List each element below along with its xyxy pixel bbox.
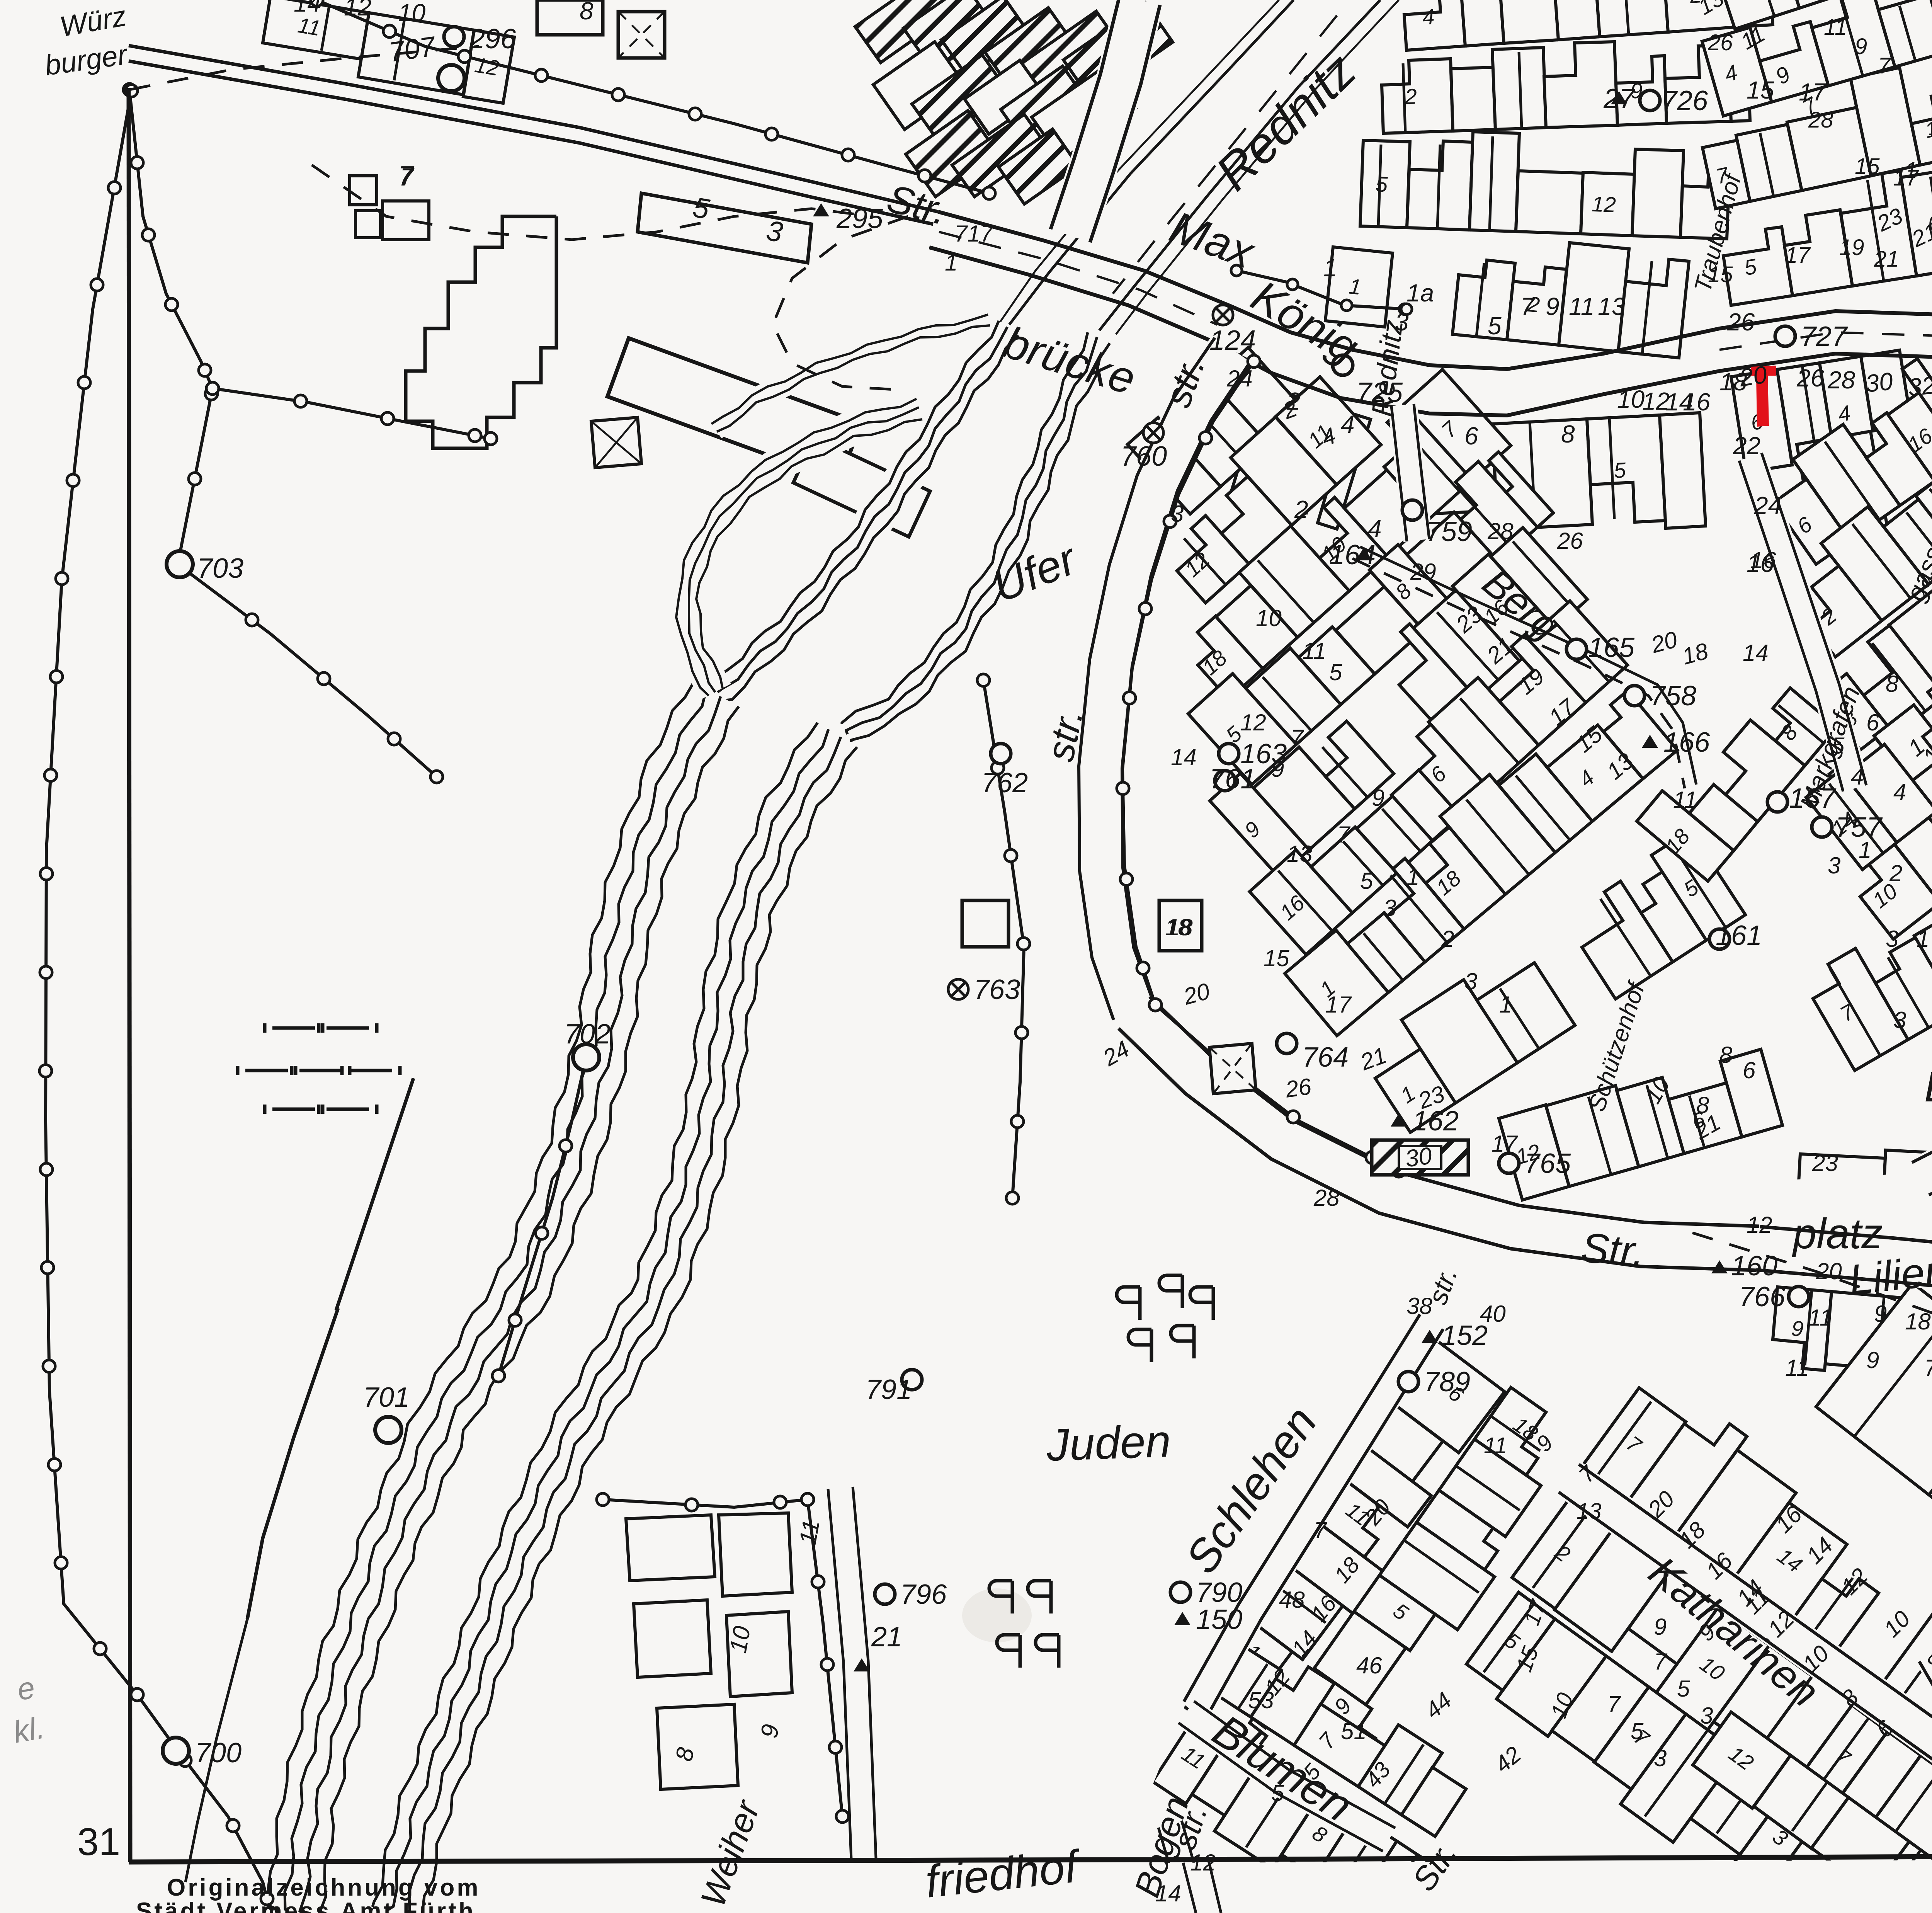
- svg-text:28: 28: [1487, 518, 1514, 544]
- svg-text:platz: platz: [1792, 1210, 1883, 1258]
- svg-text:124: 124: [1209, 325, 1256, 356]
- svg-text:29: 29: [1410, 559, 1436, 585]
- svg-text:5: 5: [1488, 312, 1502, 340]
- svg-text:27: 27: [1603, 83, 1636, 114]
- svg-text:14: 14: [294, 0, 321, 17]
- svg-text:23: 23: [1812, 1150, 1838, 1176]
- svg-text:296: 296: [469, 24, 516, 54]
- svg-text:1a: 1a: [1406, 279, 1434, 307]
- svg-text:15: 15: [1264, 945, 1289, 971]
- svg-text:19: 19: [1839, 235, 1864, 260]
- svg-text:2: 2: [1441, 926, 1454, 952]
- svg-text:6: 6: [1743, 1057, 1756, 1083]
- svg-text:9: 9: [1855, 34, 1867, 59]
- svg-text:15: 15: [1855, 154, 1880, 179]
- svg-text:165: 165: [1588, 632, 1635, 663]
- svg-text:3: 3: [1464, 968, 1477, 994]
- svg-text:3: 3: [1886, 926, 1898, 952]
- svg-text:5: 5: [1613, 458, 1627, 483]
- svg-text:kl.: kl.: [10, 1710, 47, 1750]
- svg-text:766: 766: [1739, 1282, 1786, 1312]
- svg-text:761: 761: [1209, 764, 1256, 795]
- svg-text:2: 2: [1294, 495, 1308, 523]
- svg-text:150: 150: [1196, 1604, 1242, 1635]
- svg-text:4: 4: [1893, 779, 1906, 805]
- svg-text:1: 1: [1323, 254, 1337, 282]
- svg-text:763: 763: [974, 974, 1020, 1005]
- svg-text:7: 7: [1878, 53, 1891, 78]
- svg-text:8: 8: [580, 0, 594, 25]
- svg-text:17: 17: [1325, 992, 1352, 1018]
- svg-text:15: 15: [1928, 115, 1932, 140]
- svg-text:9: 9: [1874, 1301, 1887, 1327]
- svg-text:46: 46: [1356, 1653, 1382, 1678]
- svg-text:3: 3: [1828, 853, 1840, 878]
- svg-text:702: 702: [564, 1019, 611, 1050]
- svg-text:11: 11: [1808, 1305, 1832, 1331]
- svg-text:Str.: Str.: [1580, 1224, 1646, 1275]
- svg-text:4: 4: [1422, 4, 1435, 29]
- svg-text:5: 5: [1329, 659, 1342, 685]
- svg-text:14: 14: [1743, 640, 1769, 666]
- svg-text:13: 13: [1598, 293, 1626, 320]
- svg-text:18: 18: [1167, 914, 1193, 940]
- svg-text:5: 5: [1271, 1780, 1284, 1806]
- svg-text:7: 7: [1607, 1691, 1621, 1717]
- svg-text:9: 9: [1372, 785, 1384, 811]
- svg-text:3: 3: [1700, 1703, 1713, 1729]
- svg-text:24: 24: [1226, 366, 1253, 391]
- svg-text:790: 790: [1196, 1577, 1242, 1608]
- svg-text:17: 17: [1492, 1131, 1518, 1157]
- svg-text:9: 9: [1546, 293, 1560, 320]
- svg-text:5: 5: [1375, 172, 1388, 196]
- svg-text:28: 28: [1808, 107, 1833, 133]
- svg-text:1: 1: [1348, 274, 1362, 300]
- svg-text:26: 26: [1796, 364, 1825, 392]
- svg-text:791: 791: [866, 1374, 912, 1405]
- svg-text:15: 15: [1708, 262, 1733, 287]
- svg-text:3: 3: [1383, 895, 1396, 921]
- svg-text:3: 3: [1171, 501, 1184, 527]
- svg-text:796: 796: [900, 1579, 947, 1610]
- svg-text:12: 12: [1747, 1212, 1772, 1238]
- svg-text:20: 20: [1737, 361, 1769, 392]
- svg-text:10: 10: [1256, 605, 1282, 631]
- svg-text:5: 5: [1832, 733, 1845, 759]
- svg-text:160: 160: [1731, 1251, 1777, 1282]
- svg-text:7: 7: [1314, 1517, 1328, 1543]
- svg-text:762: 762: [981, 768, 1028, 798]
- svg-text:10: 10: [398, 0, 426, 27]
- svg-text:765: 765: [1524, 1148, 1571, 1179]
- svg-text:48: 48: [1279, 1587, 1305, 1613]
- svg-text:4: 4: [1341, 410, 1355, 438]
- svg-text:30: 30: [1864, 367, 1895, 398]
- svg-text:2: 2: [1889, 860, 1902, 886]
- svg-text:758: 758: [1650, 681, 1696, 711]
- svg-text:26: 26: [1727, 308, 1755, 336]
- svg-text:717: 717: [954, 221, 994, 247]
- svg-text:5: 5: [1360, 868, 1373, 894]
- svg-text:10: 10: [725, 1624, 756, 1655]
- svg-text:8: 8: [1719, 1042, 1733, 1068]
- svg-text:2: 2: [1404, 84, 1417, 109]
- svg-text:26: 26: [1557, 528, 1583, 554]
- svg-text:8: 8: [1886, 671, 1899, 697]
- svg-text:701: 701: [363, 1382, 410, 1413]
- svg-text:38: 38: [1406, 1293, 1432, 1319]
- svg-text:32: 32: [1906, 371, 1932, 402]
- svg-text:726: 726: [1662, 85, 1708, 116]
- svg-text:164: 164: [1329, 540, 1376, 570]
- svg-text:1: 1: [1499, 992, 1512, 1018]
- svg-text:26: 26: [1283, 1073, 1313, 1103]
- svg-text:21: 21: [871, 1622, 902, 1653]
- svg-text:9: 9: [1790, 1316, 1804, 1341]
- svg-text:11: 11: [1569, 293, 1594, 320]
- svg-text:7: 7: [1924, 1355, 1932, 1381]
- svg-text:7: 7: [400, 163, 415, 191]
- svg-text:22: 22: [1733, 432, 1760, 460]
- svg-text:7: 7: [1291, 725, 1304, 751]
- svg-text:Juden: Juden: [1045, 1416, 1172, 1471]
- svg-text:13: 13: [1287, 841, 1313, 867]
- svg-text:6: 6: [1464, 422, 1478, 450]
- svg-text:Löwen: Löwen: [1924, 1063, 1932, 1111]
- svg-text:9: 9: [1271, 756, 1284, 782]
- svg-text:759: 759: [1426, 516, 1472, 547]
- svg-text:1: 1: [1406, 864, 1419, 890]
- svg-text:40: 40: [1480, 1301, 1506, 1327]
- svg-text:4: 4: [1851, 764, 1864, 790]
- svg-text:12: 12: [1240, 710, 1266, 735]
- svg-text:14: 14: [1171, 744, 1197, 770]
- svg-text:28: 28: [1313, 1185, 1340, 1211]
- svg-text:21: 21: [1874, 247, 1899, 272]
- svg-text:11: 11: [1673, 787, 1697, 813]
- svg-text:28: 28: [1827, 366, 1855, 394]
- svg-text:1: 1: [1917, 926, 1929, 952]
- svg-text:9: 9: [1654, 1614, 1667, 1640]
- svg-text:295: 295: [836, 203, 883, 234]
- svg-text:3: 3: [1654, 1745, 1667, 1771]
- svg-text:6: 6: [1866, 710, 1879, 735]
- svg-text:31: 31: [77, 1820, 120, 1864]
- svg-text:11: 11: [1785, 1355, 1809, 1381]
- svg-text:8: 8: [1561, 420, 1575, 448]
- svg-text:166: 166: [1663, 727, 1710, 758]
- svg-text:764: 764: [1302, 1042, 1349, 1073]
- svg-text:18: 18: [1905, 1309, 1931, 1334]
- svg-text:Städt.Vermess.Amt Fürth.: Städt.Vermess.Amt Fürth.: [136, 1898, 485, 1913]
- svg-text:24: 24: [1754, 492, 1782, 519]
- svg-text:10: 10: [1617, 385, 1645, 413]
- svg-text:13: 13: [1577, 1499, 1602, 1524]
- svg-text:7: 7: [1337, 822, 1351, 848]
- svg-text:17: 17: [1785, 243, 1811, 268]
- svg-text:9: 9: [1866, 1347, 1879, 1373]
- svg-text:16: 16: [1683, 388, 1711, 416]
- svg-text:760: 760: [1121, 441, 1167, 472]
- svg-text:162: 162: [1412, 1106, 1459, 1137]
- svg-text:7: 7: [1654, 1649, 1668, 1675]
- svg-text:727: 727: [1801, 321, 1848, 352]
- svg-text:12: 12: [1591, 192, 1616, 217]
- svg-text:14: 14: [1155, 1881, 1181, 1906]
- svg-text:161: 161: [1716, 920, 1762, 951]
- svg-text:20: 20: [1816, 1258, 1842, 1284]
- svg-text:30: 30: [1403, 1142, 1434, 1173]
- svg-text:707: 707: [387, 31, 438, 68]
- svg-text:1: 1: [1859, 837, 1871, 863]
- svg-text:7: 7: [1520, 293, 1535, 320]
- svg-text:700: 700: [195, 1738, 241, 1768]
- svg-text:51: 51: [1341, 1718, 1367, 1744]
- svg-text:12: 12: [1190, 1850, 1216, 1876]
- svg-text:12: 12: [473, 53, 501, 80]
- svg-text:26: 26: [1708, 30, 1733, 55]
- svg-text:5: 5: [1677, 1676, 1690, 1702]
- svg-text:16: 16: [1750, 547, 1776, 573]
- svg-text:3: 3: [1893, 1007, 1906, 1033]
- svg-text:Originalzeichnung vom: Originalzeichnung vom: [167, 1874, 481, 1901]
- svg-text:1: 1: [1905, 158, 1917, 183]
- svg-text:1: 1: [945, 250, 957, 276]
- svg-text:12: 12: [344, 0, 371, 21]
- svg-text:11: 11: [1824, 15, 1847, 40]
- svg-text:703: 703: [197, 553, 243, 584]
- svg-text:15: 15: [1747, 76, 1774, 104]
- svg-text:11: 11: [1484, 1433, 1507, 1458]
- svg-text:5: 5: [1631, 1718, 1644, 1744]
- svg-text:4: 4: [1368, 515, 1382, 543]
- svg-text:789: 789: [1424, 1367, 1470, 1397]
- svg-text:3: 3: [1395, 308, 1409, 336]
- svg-text:11: 11: [1302, 638, 1326, 664]
